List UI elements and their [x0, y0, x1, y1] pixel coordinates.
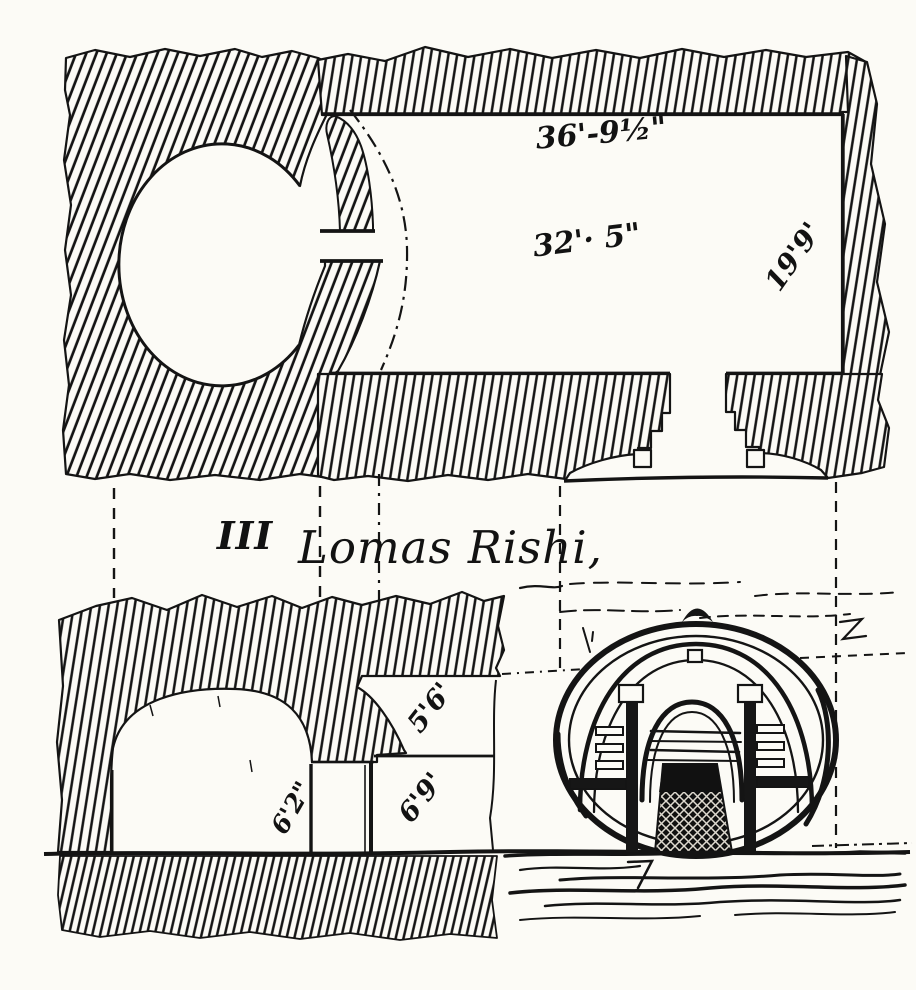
plan-north-wall [318, 47, 866, 115]
engraving-figure: 36'-9½" 32'· 5" 19'9' III Lomas Rishi, [0, 0, 916, 990]
arch-peak-knob [688, 650, 702, 662]
doorway-jamb-notch-left [634, 450, 651, 467]
plate-numeral: III [216, 513, 274, 558]
projection-line-springing-right [800, 653, 908, 658]
caption: III Lomas Rishi, [216, 513, 603, 574]
plan-wall-emphasis-lines [119, 114, 844, 386]
plate-title: Lomas Rishi, [297, 521, 603, 574]
projection-line-ground-right [812, 843, 912, 846]
post-capital-right [738, 685, 762, 702]
side-rungs-left [570, 727, 626, 789]
door-frame-post-right [744, 700, 756, 853]
doorway-threshold-line [564, 477, 828, 481]
section-ground-hatch [58, 856, 497, 940]
doorway-dark-head [659, 764, 721, 792]
plan-south-wall-west-segment [318, 374, 670, 481]
projection-line-springing-left [502, 669, 586, 674]
plan-curved-wall-segment [326, 116, 373, 231]
dimension-label-hall-length: 36'-9½" [534, 110, 668, 156]
plan-view: 36'-9½" 32'· 5" 19'9' [63, 47, 889, 481]
doorway-jamb-notch-right [747, 450, 764, 467]
finial-bump [682, 609, 713, 623]
dimension-label-upper-opening: 5'6' [401, 677, 459, 739]
dimension-label-hall-side: 19'9' [758, 216, 828, 297]
dimension-label-hall-midwidth: 32'· 5" [531, 217, 643, 265]
plan-east-wall [842, 56, 889, 375]
dimension-label-lower-opening: 6'9' [392, 767, 450, 829]
rock-surface-squiggles [520, 582, 900, 652]
ground-sketch-strokes [505, 852, 905, 920]
facade-elevation [505, 582, 905, 920]
door-frame-post-left [626, 700, 638, 853]
post-capital-left [619, 685, 643, 702]
